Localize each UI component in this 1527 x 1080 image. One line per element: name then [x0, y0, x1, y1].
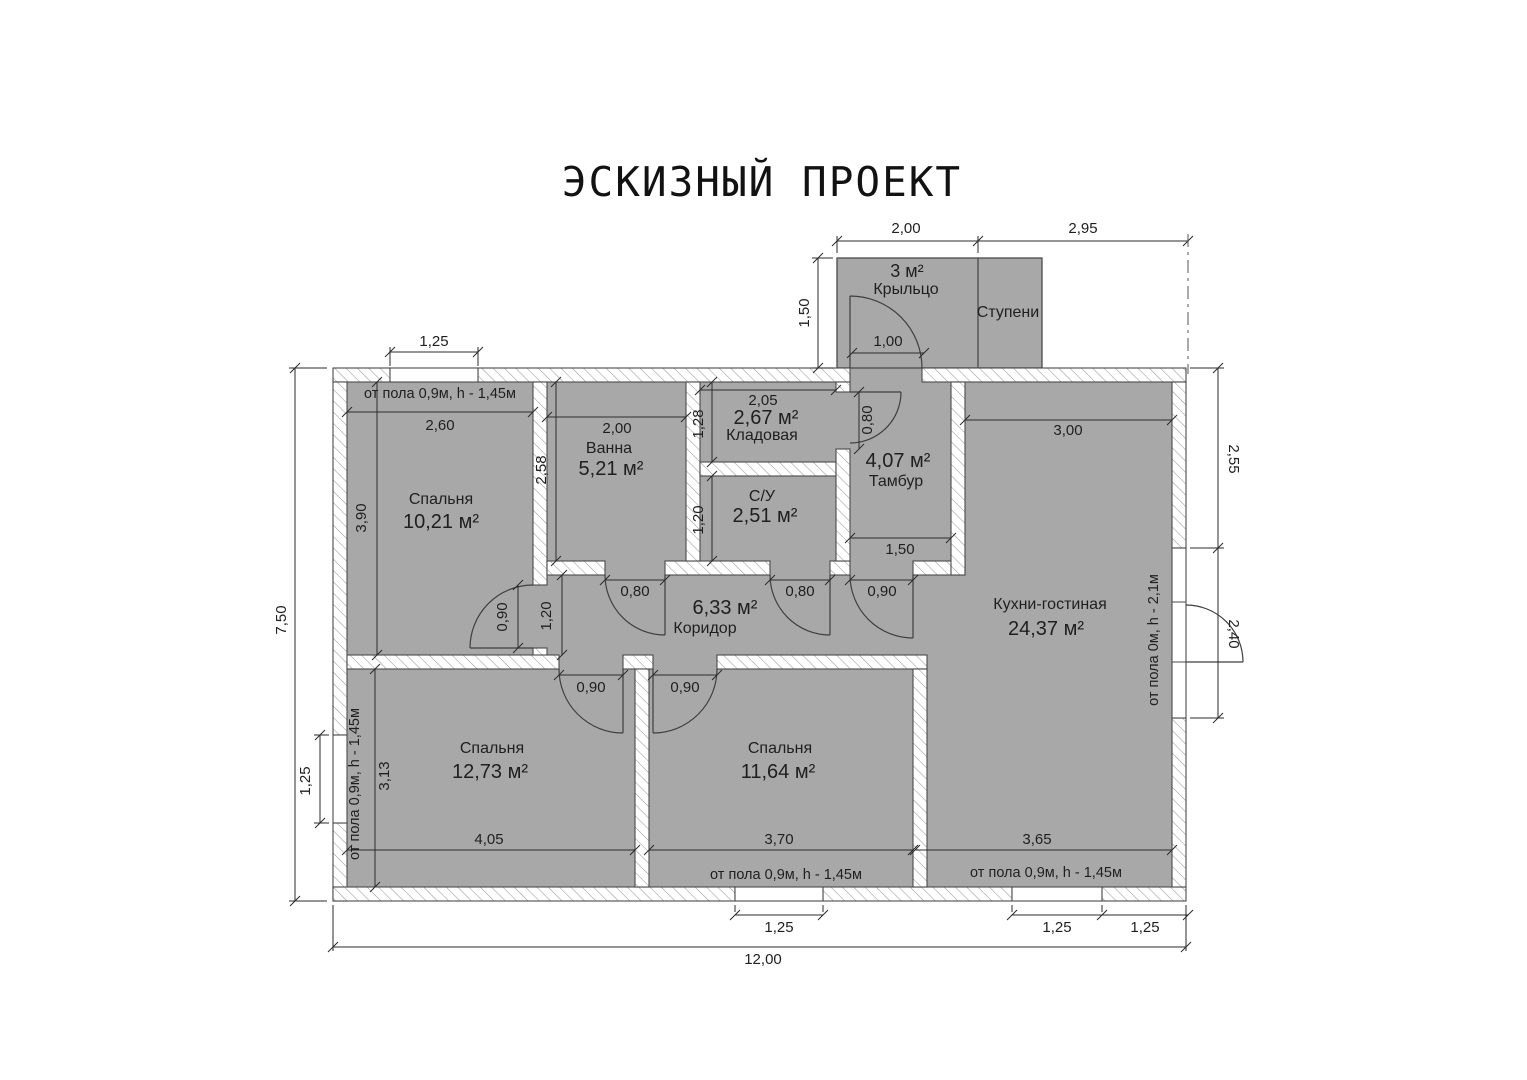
- label-bedroom1-area: 10,21 м²: [403, 511, 479, 533]
- door-gap-bedroom2: [559, 655, 623, 669]
- dim-text-kitchen-bottom: 3,65: [1022, 831, 1051, 848]
- dim-text-b3-width: 3,70: [764, 831, 793, 848]
- dim-text-corridor-height: 1,20: [538, 601, 555, 630]
- window-bottom-bedroom3: [735, 887, 823, 901]
- dim-text-top-window: 1,25: [419, 333, 448, 350]
- label-kitchen-name: Кухни-гостиная: [993, 596, 1106, 613]
- label-tambour-area: 4,07 м²: [866, 450, 931, 472]
- dim-left-window: [314, 730, 329, 828]
- dim-text-porch-depth: 1,50: [796, 298, 813, 327]
- door-gap-entrance: [850, 368, 922, 382]
- label-bath-name: Ванна: [586, 440, 632, 457]
- dim-text-b1-height: 3,90: [353, 503, 370, 532]
- note-window-bedroom3: от пола 0,9м, h - 1,45м: [710, 867, 862, 883]
- label-bedroom2-name: Спальня: [460, 740, 524, 757]
- label-corridor-name: Коридор: [673, 620, 736, 637]
- label-porch-steps: Ступени: [977, 304, 1039, 321]
- dim-text-b3-door: 0,90: [670, 679, 699, 696]
- dim-text-b1-width: 2,60: [425, 417, 454, 434]
- dim-text-bath-width: 2,00: [602, 420, 631, 437]
- dim-total-height: [289, 363, 327, 906]
- dim-text-tambour-door: 0,90: [867, 583, 896, 600]
- dim-text-left-window: 1,25: [297, 766, 314, 795]
- dim-text-bath-height: 2,58: [533, 455, 550, 484]
- dim-text-storage-door: 0,80: [859, 405, 876, 434]
- dim-text-kitchen-window: 1,25: [1042, 919, 1071, 936]
- dim-porch-widths: [832, 236, 1193, 253]
- dim-text-right-upper: 2,55: [1225, 444, 1242, 473]
- label-storage-name: Кладовая: [726, 427, 798, 444]
- dim-text-b1-door: 0,90: [494, 602, 511, 631]
- dim-text-porch-width: 2,00: [891, 220, 920, 237]
- french-door-unit: [1172, 548, 1186, 718]
- label-porch-name: Крыльцо: [873, 281, 938, 298]
- dim-text-total-height: 7,50: [273, 605, 290, 634]
- dim-text-porch-side: 2,95: [1068, 220, 1097, 237]
- dim-text-b2-height: 3,13: [376, 761, 393, 790]
- label-bedroom3-name: Спальня: [748, 740, 812, 757]
- dim-text-right-door: 2,40: [1225, 619, 1242, 648]
- window-top: [390, 368, 478, 382]
- door-gap-storage: [836, 392, 850, 449]
- dim-text-b2-door: 0,90: [576, 679, 605, 696]
- label-porch-area: 3 м²: [890, 261, 923, 281]
- dim-text-wc-height: 1,20: [690, 505, 707, 534]
- dim-text-bath-door: 0,80: [620, 583, 649, 600]
- dim-text-porch-door: 1,00: [873, 333, 902, 350]
- door-gap-tambour: [850, 561, 913, 575]
- window-bottom-kitchen: [1012, 887, 1102, 901]
- label-corridor-area: 6,33 м²: [693, 597, 758, 619]
- dim-bottom-windows: [730, 905, 1193, 920]
- floor-plan-page: ЭСКИЗНЫЙ ПРОЕКТ: [0, 0, 1527, 1080]
- label-storage-area: 2,67 м²: [734, 407, 799, 429]
- dim-text-bottom-window: 1,25: [764, 919, 793, 936]
- dim-text-tambour-width: 1,50: [885, 541, 914, 558]
- label-wc-area: 2,51 м²: [733, 505, 798, 527]
- dim-porch-depth: [812, 253, 833, 373]
- dim-text-b2-width: 4,05: [474, 831, 503, 848]
- dim-text-wc-door: 0,80: [785, 583, 814, 600]
- dim-text-kitchen-width: 3,00: [1053, 422, 1082, 439]
- dim-text-storage-height: 1,28: [690, 409, 707, 438]
- window-left: [333, 735, 347, 823]
- label-bedroom2-area: 12,73 м²: [452, 761, 528, 783]
- note-window-kitchen: от пола 0,9м, h - 1,45м: [970, 865, 1122, 881]
- note-terrace-door: от пола 0м, h - 2,1м: [1146, 574, 1162, 706]
- label-bedroom1-name: Спальня: [409, 491, 473, 508]
- page-title: ЭСКИЗНЫЙ ПРОЕКТ: [562, 158, 962, 206]
- dim-right-side: [1190, 363, 1224, 723]
- door-gap-bath: [605, 561, 665, 575]
- label-kitchen-area: 24,37 м²: [1008, 618, 1084, 640]
- note-window-bedroom2: от пола 0,9м, h - 1,45м: [347, 708, 363, 860]
- door-gap-bedroom3: [653, 655, 717, 669]
- label-bedroom3-area: 11,64 м²: [741, 761, 816, 783]
- floor-plan-drawing: ЭСКИЗНЫЙ ПРОЕКТ: [0, 0, 1527, 1080]
- door-gap-wc: [770, 561, 830, 575]
- dim-text-corner-offset: 1,25: [1130, 919, 1159, 936]
- label-wc-name: С/У: [749, 488, 776, 505]
- note-window-bedroom1: от пола 0,9м, h - 1,45м: [364, 386, 516, 402]
- label-bath-area: 5,21 м²: [579, 458, 644, 480]
- label-tambour-name: Тамбур: [869, 473, 923, 490]
- dim-text-total-width: 12,00: [744, 951, 782, 968]
